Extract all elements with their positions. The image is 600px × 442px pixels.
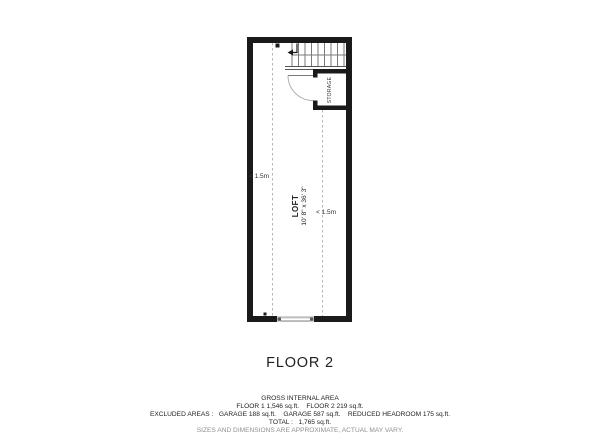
wall-marker-top [276,44,280,48]
window [277,316,314,322]
disclaimer-line: SIZES AND DIMENSIONS ARE APPROXIMATE, AC… [0,427,600,435]
floorplan-page: LOFT 10' 8" x 36' 3" STORAGE < 1.5m < 1.… [0,0,600,442]
gross-internal-area-line: GROSS INTERNAL AREA [0,395,600,403]
clearance-label-left: < 1.5m [249,173,269,181]
excluded-areas-line: EXCLUDED AREAS : GARAGE 188 sq.ft. GARAG… [0,411,600,419]
total-area-line: TOTAL : 1,765 sq.ft. [0,419,600,427]
clearance-label-right: < 1.5m [316,209,336,217]
storage-room-label: STORAGE [325,60,335,120]
wall-marker-bottom [264,313,267,316]
loft-dimensions: 10' 8" x 36' 3" [301,186,309,225]
loft-name: LOFT [291,195,300,217]
area-summary: GROSS INTERNAL AREA FLOOR 1 1,546 sq.ft.… [0,395,600,435]
floor-areas-line: FLOOR 1 1,546 sq.ft. FLOOR 2 219 sq.ft. [0,403,600,411]
loft-room-label: LOFT 10' 8" x 36' 3" [260,146,340,266]
floor-title: FLOOR 2 [0,355,600,371]
